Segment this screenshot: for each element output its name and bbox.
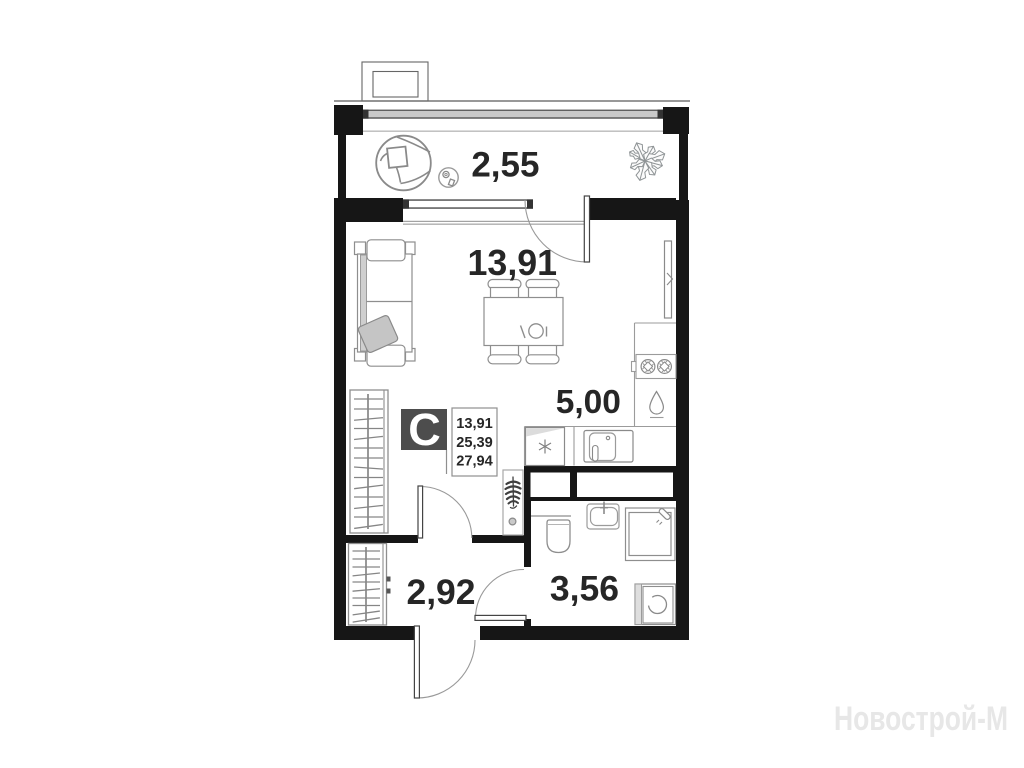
svg-text:Новострой-М: Новострой-М [834,700,1008,738]
svg-text:С: С [408,404,441,455]
svg-text:5,00: 5,00 [556,384,621,421]
svg-text:13,91: 13,91 [468,243,558,283]
svg-text:2,55: 2,55 [471,145,539,184]
svg-text:3,56: 3,56 [550,569,619,609]
svg-text:13,91: 13,91 [456,416,493,432]
svg-text:25,39: 25,39 [456,435,493,451]
svg-text:2,92: 2,92 [406,572,475,612]
svg-text:27,94: 27,94 [456,454,493,470]
